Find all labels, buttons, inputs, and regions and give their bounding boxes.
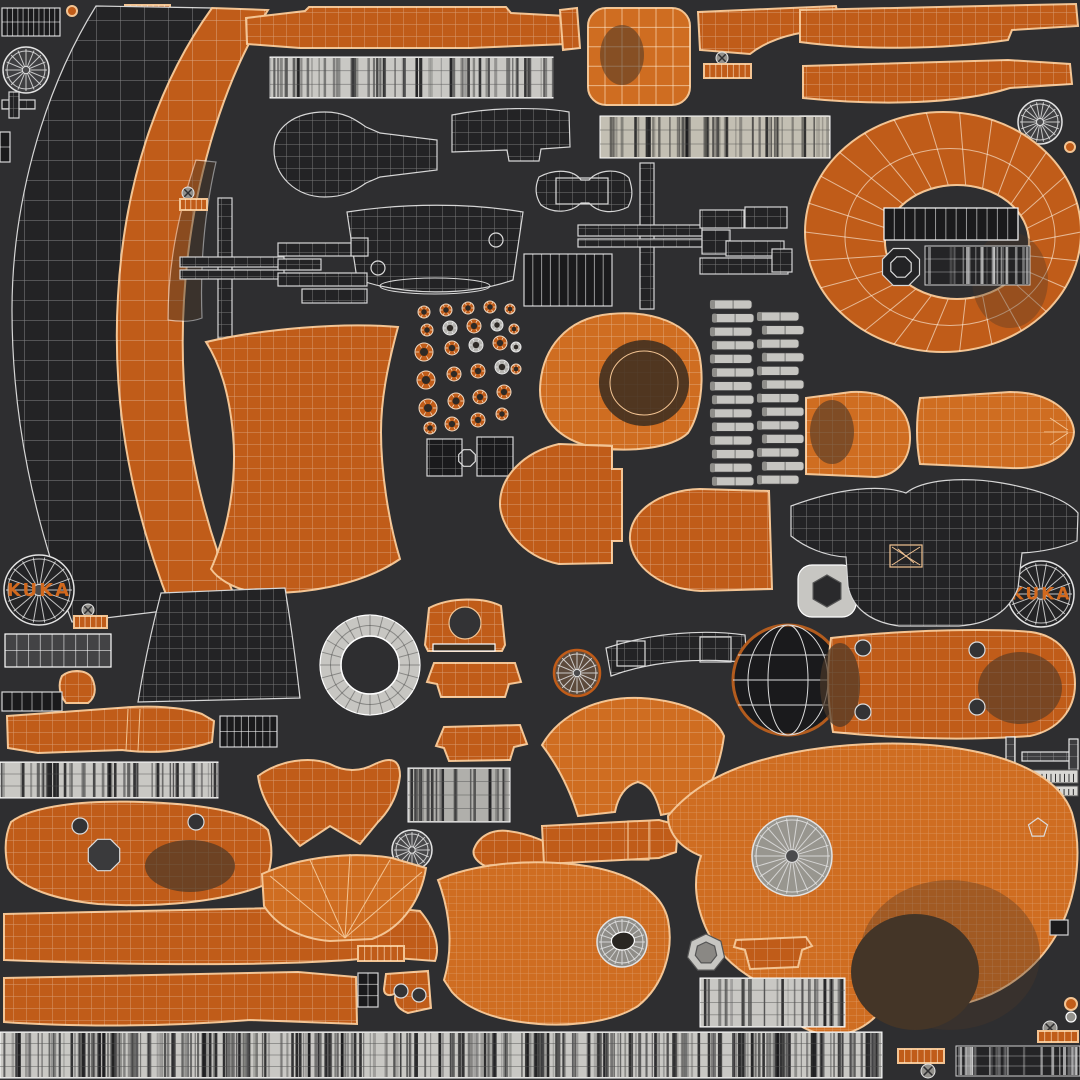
screw-c	[82, 604, 94, 616]
screw-b	[182, 187, 194, 199]
bucket	[347, 205, 523, 294]
orange-dome	[806, 392, 910, 477]
orange-dot-a	[67, 6, 77, 16]
bone-spool	[536, 171, 632, 212]
orange-strip-r1	[800, 4, 1078, 48]
radial-tl	[3, 47, 49, 93]
board-bolt-3	[855, 704, 871, 720]
dome-capsule	[630, 489, 772, 591]
pins-col-1	[710, 300, 754, 486]
orange-strip-r2	[803, 60, 1072, 103]
panel-notched	[452, 109, 570, 161]
hole-piece-hole	[449, 607, 481, 639]
orange-egg	[540, 313, 702, 449]
board-bolt-2	[969, 642, 985, 658]
white-bar	[5, 634, 111, 667]
dome-shade	[810, 400, 854, 464]
plus-piece	[2, 92, 35, 118]
nut-inner	[695, 942, 716, 963]
barcode-mid	[408, 768, 510, 822]
octagon-b	[883, 249, 920, 286]
pins-col-2	[757, 312, 804, 484]
orange-dot-tr	[1065, 142, 1075, 152]
orange-curtain	[206, 325, 400, 592]
gray-plank-b	[700, 978, 845, 1027]
blob-joint-wheel	[752, 816, 832, 896]
roundsq-shade	[600, 25, 644, 85]
orange-nub	[60, 671, 95, 703]
board-shade-2	[978, 652, 1062, 724]
hole-piece	[425, 599, 505, 651]
pedestal-a	[427, 663, 521, 697]
kuka-wheel-left: KUKA	[4, 555, 74, 625]
orange-grill-b	[180, 199, 207, 210]
top-band	[246, 7, 567, 48]
islands-root: KUKAKUKA	[0, 4, 1080, 1078]
sole-bolt-2	[188, 814, 204, 830]
orange-sole	[6, 802, 272, 906]
uv-atlas-canvas: KUKAKUKA	[0, 0, 1080, 1080]
hole-piece-base	[433, 644, 495, 651]
sole-bolt-1	[72, 818, 88, 834]
kuka-logo-text: KUKA	[1010, 585, 1071, 605]
dark-grill-a	[2, 692, 62, 711]
orange-grill-e	[1038, 1031, 1078, 1042]
torus-grid-bar	[884, 208, 1018, 240]
gray-ring	[320, 615, 420, 715]
step-blocks	[700, 207, 792, 274]
orange-roundsq	[588, 8, 690, 105]
egg-hole	[599, 340, 689, 426]
barcode-torus	[925, 246, 1030, 285]
kuka-logo-text: KUKA	[7, 580, 71, 601]
e-piece	[278, 238, 368, 303]
corner-dot-gray	[1066, 1012, 1076, 1022]
corner-dot-orange	[1065, 998, 1077, 1010]
barcode-main	[0, 1032, 882, 1078]
screw-a	[716, 52, 728, 64]
orange-grill-f	[358, 946, 404, 961]
blob-dark-circle	[851, 914, 979, 1030]
orange-bullet	[917, 392, 1074, 468]
grid-box-tl	[2, 8, 60, 36]
pedestal-b	[436, 725, 527, 761]
orange-whale	[438, 862, 670, 1024]
orange-strip-b2	[4, 972, 357, 1026]
radial-orange	[554, 650, 600, 696]
sole-octagon	[88, 839, 119, 870]
dark-grill-b	[220, 716, 277, 747]
orange-bowtie	[258, 760, 400, 846]
dark-panel-a	[524, 254, 612, 306]
orange-grill-d	[898, 1049, 944, 1063]
orange-grill-top	[704, 64, 751, 78]
dark-skirt	[138, 588, 300, 702]
orange-leg	[7, 707, 214, 753]
screw-d	[921, 1064, 935, 1078]
board-shade-1	[820, 643, 860, 727]
board-bolt-1	[855, 640, 871, 656]
blob-tab	[1050, 920, 1068, 935]
barcode-dark-br	[956, 1046, 1080, 1076]
orange-strap	[542, 820, 678, 864]
b-hole-1	[394, 984, 408, 998]
arch-shield	[500, 444, 622, 564]
bottle	[274, 112, 437, 197]
tan-bar	[600, 116, 830, 158]
bolt-cluster	[415, 301, 521, 434]
sole-shade	[145, 840, 235, 892]
black-spool	[427, 437, 513, 476]
orange-grill-c	[74, 616, 107, 628]
b-hole-2	[412, 988, 426, 1002]
gray-plank-a	[0, 762, 218, 798]
board-bolt-4	[969, 699, 985, 715]
whale-teardrop	[611, 932, 634, 950]
dark-strip-sm	[358, 973, 378, 1007]
panel-curved	[606, 632, 747, 676]
edge-sliver	[0, 132, 10, 162]
orange-board	[820, 630, 1075, 739]
uv-texture-atlas: KUKAKUKA	[0, 0, 1080, 1080]
gray-band-a	[270, 57, 553, 98]
b-shape	[384, 971, 431, 1013]
orange-wedge-a	[560, 8, 580, 50]
